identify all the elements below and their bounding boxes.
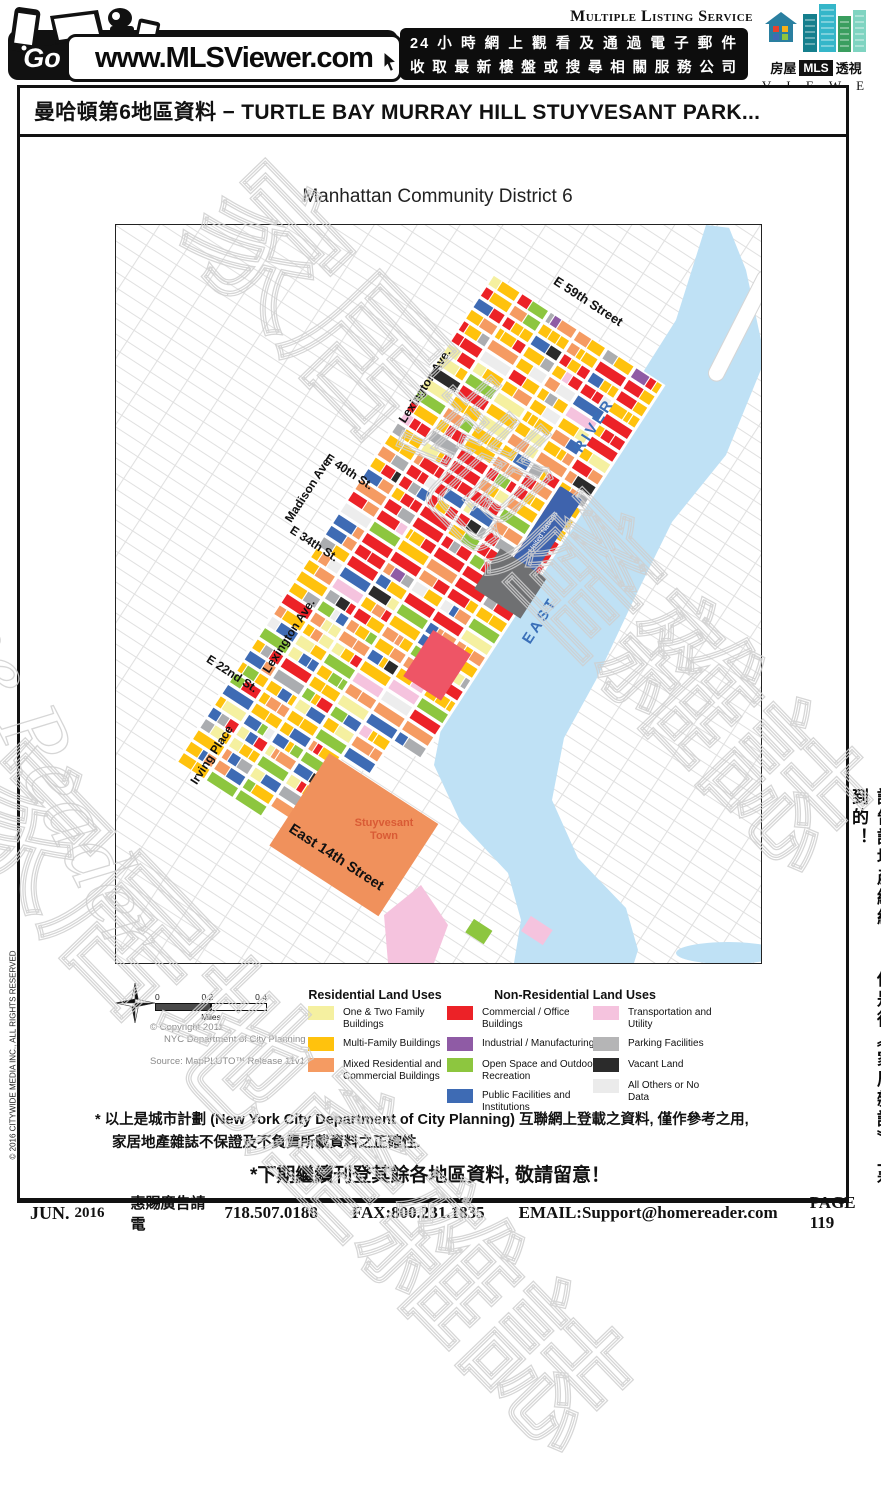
svg-text:Town: Town <box>370 830 398 842</box>
legend-swatch <box>308 1037 334 1051</box>
legend-label: Vacant Land <box>628 1058 683 1071</box>
legend-residential-title: Residential Land Uses <box>300 988 450 1002</box>
legend-item: Parking Facilities <box>593 1037 723 1051</box>
page-footer: JUN. 2016 惠賜廣告請電 718.507.0188 FAX:800.23… <box>0 1198 881 1228</box>
legend-item: Open Space and Outdoor Recreation <box>447 1058 597 1082</box>
go-label: Go <box>16 40 68 76</box>
cursor-icon <box>383 52 399 77</box>
scale-tick-02: 0.2 <box>202 992 214 1002</box>
legend-label: Open Space and Outdoor Recreation <box>482 1058 597 1082</box>
logo-mls-badge: MLS <box>799 60 832 76</box>
scale-unit: Miles <box>155 1012 267 1022</box>
footer-fax: FAX:800.231.1835 <box>352 1203 485 1223</box>
footnote-line1: * 以上是城市計劃 (New York City Department of C… <box>95 1108 795 1129</box>
credit-source: Source: MapPLUTO™ Release 11v1 <box>150 1056 306 1068</box>
legend-item: All Others or No Data <box>593 1079 723 1103</box>
legend-nonresidential-title: Non-Residential Land Uses <box>470 988 680 1002</box>
scalebar-bar <box>155 1003 267 1011</box>
tagline-line2: 收取最新樓盤或搜尋相關服務公司 <box>410 56 738 77</box>
footer-year: 2016 <box>75 1205 105 1222</box>
right-vertical-note: 請告訴地產經紀： 你是從《家居雜誌》上看到的！ <box>846 788 881 1192</box>
legend-swatch <box>308 1058 334 1072</box>
legend-swatch <box>593 1037 619 1051</box>
footnote-line2: 家居地產雜誌不保證及不負責所載資料之正確性. <box>112 1131 812 1152</box>
legend-label: All Others or No Data <box>628 1079 723 1103</box>
legend-residential-items: One & Two Family Buildings Multi-Family … <box>308 1006 448 1089</box>
legend-item: One & Two Family Buildings <box>308 1006 448 1030</box>
legend-label: Commercial / Office Buildings <box>482 1006 597 1030</box>
footnote-notice: *下期繼續刊登其餘各地區資料, 敬請留意！ <box>17 1160 843 1187</box>
mls-service-label: Multiple Listing Service <box>570 8 753 26</box>
legend-item: Multi-Family Buildings <box>308 1037 448 1051</box>
footer-page-number: PAGE 119 <box>810 1193 881 1233</box>
legend-swatch <box>447 1006 473 1020</box>
tagline-line1: 24小時網上觀看及通過電子郵件 <box>410 32 738 53</box>
footer-month: JUN. <box>30 1203 70 1224</box>
legend-item: Industrial / Manufacturing <box>447 1037 597 1051</box>
legend-swatch <box>447 1089 473 1103</box>
logo-left-cn: 房屋 <box>770 58 796 77</box>
district-map: E 59th StreetE 40th St.E 34th St.E 22nd … <box>115 224 762 964</box>
legend-swatch <box>593 1006 619 1020</box>
legend-swatch <box>447 1058 473 1072</box>
credit-line2: NYC Department of City Planning <box>150 1034 306 1046</box>
mls-viewer-logo: 房屋 MLS 透視 V I E W E R <box>757 2 875 84</box>
legend-label: Industrial / Manufacturing <box>482 1037 594 1050</box>
legend-swatch <box>308 1006 334 1020</box>
footer-phone: 718.507.0188 <box>224 1203 318 1223</box>
credit-line1: © Copyright 2011 <box>150 1022 306 1034</box>
logo-right-cn: 透視 <box>836 58 862 77</box>
map-scalebar: 0 0.2 0.4 Miles <box>155 992 267 1022</box>
scale-tick-04: 0.4 <box>255 992 267 1002</box>
legend-label: Mixed Residential and Commercial Buildin… <box>343 1058 448 1082</box>
logo-buildings-icon <box>761 2 871 52</box>
copyright-vertical: © 2016 CITYWIDE MEDIA INC., ALL RIGHTS R… <box>9 930 18 1160</box>
legend-item: Transportation and Utility <box>593 1006 723 1030</box>
legend-swatch <box>593 1079 619 1093</box>
header-tagline: 24小時網上觀看及通過電子郵件 收取最新樓盤或搜尋相關服務公司 <box>400 28 748 80</box>
legend-item: Mixed Residential and Commercial Buildin… <box>308 1058 448 1082</box>
website-url: www.MLSViewer.com <box>95 42 373 75</box>
legend-swatch <box>593 1058 619 1072</box>
legend-nonresidential-col2: Transportation and Utility Parking Facil… <box>593 1006 723 1110</box>
legend-label: Transportation and Utility <box>628 1006 723 1030</box>
legend-item: Vacant Land <box>593 1058 723 1072</box>
legend-label: Parking Facilities <box>628 1037 704 1050</box>
website-url-pill: www.MLSViewer.com <box>66 34 402 82</box>
legend-label: Multi-Family Buildings <box>343 1037 440 1050</box>
svg-text:Stuyvesant: Stuyvesant <box>355 817 414 829</box>
scale-tick-0: 0 <box>155 992 160 1002</box>
legend-item: Commercial / Office Buildings <box>447 1006 597 1030</box>
page-title: 曼哈頓第6地區資料 − TURTLE BAY MURRAY HILL STUYV… <box>20 88 846 137</box>
legend-label: One & Two Family Buildings <box>343 1006 448 1030</box>
legend-swatch <box>447 1037 473 1051</box>
legend-nonresidential-col1: Commercial / Office Buildings Industrial… <box>447 1006 597 1120</box>
map-credits: © Copyright 2011 NYC Department of City … <box>150 1022 306 1068</box>
map-title: Manhattan Community District 6 <box>115 186 760 208</box>
footer-email: EMAIL:Support@homereader.com <box>519 1203 778 1223</box>
